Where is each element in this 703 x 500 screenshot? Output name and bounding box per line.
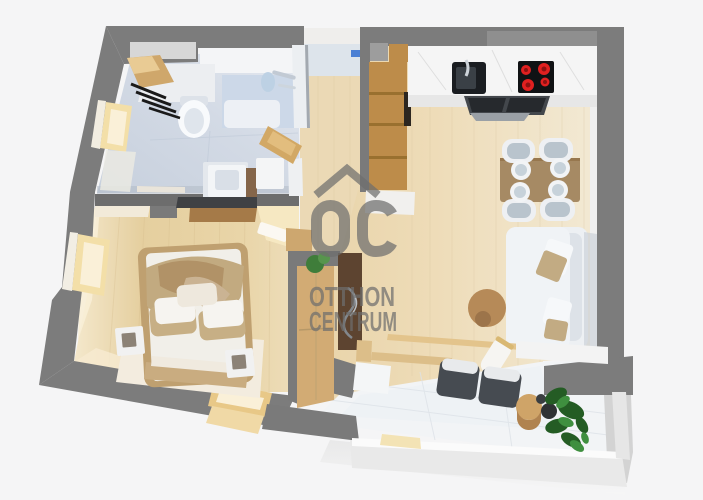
svg-text:CENTRUM: CENTRUM <box>309 306 397 337</box>
